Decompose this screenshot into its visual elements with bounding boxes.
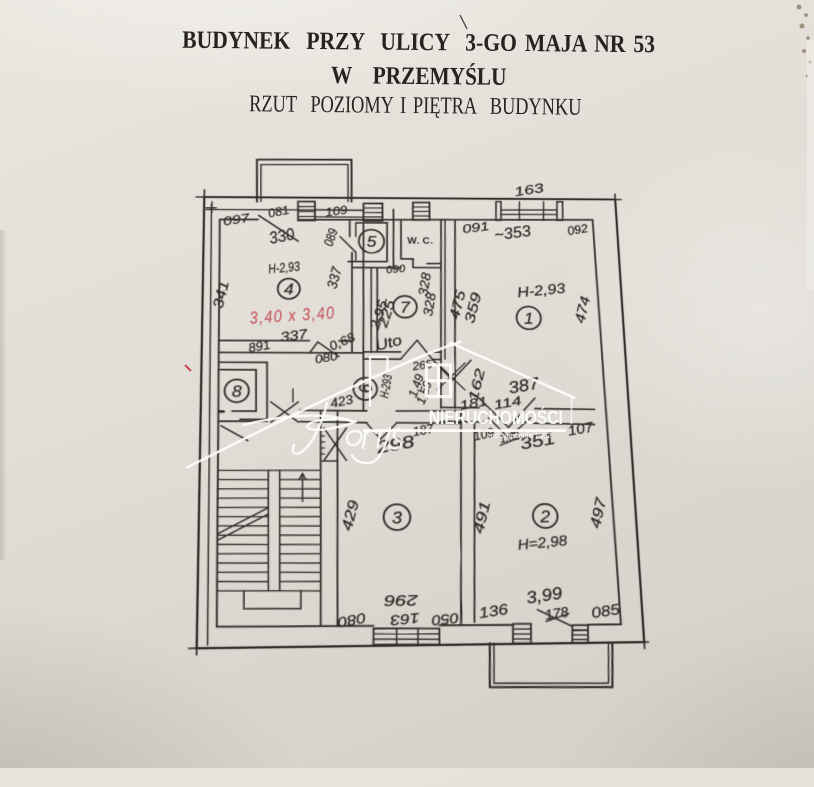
svg-text:NIERUCHOMOŚCI: NIERUCHOMOŚCI — [429, 406, 563, 428]
svg-text:od założenia 1992: od założenia 1992 — [491, 431, 552, 440]
